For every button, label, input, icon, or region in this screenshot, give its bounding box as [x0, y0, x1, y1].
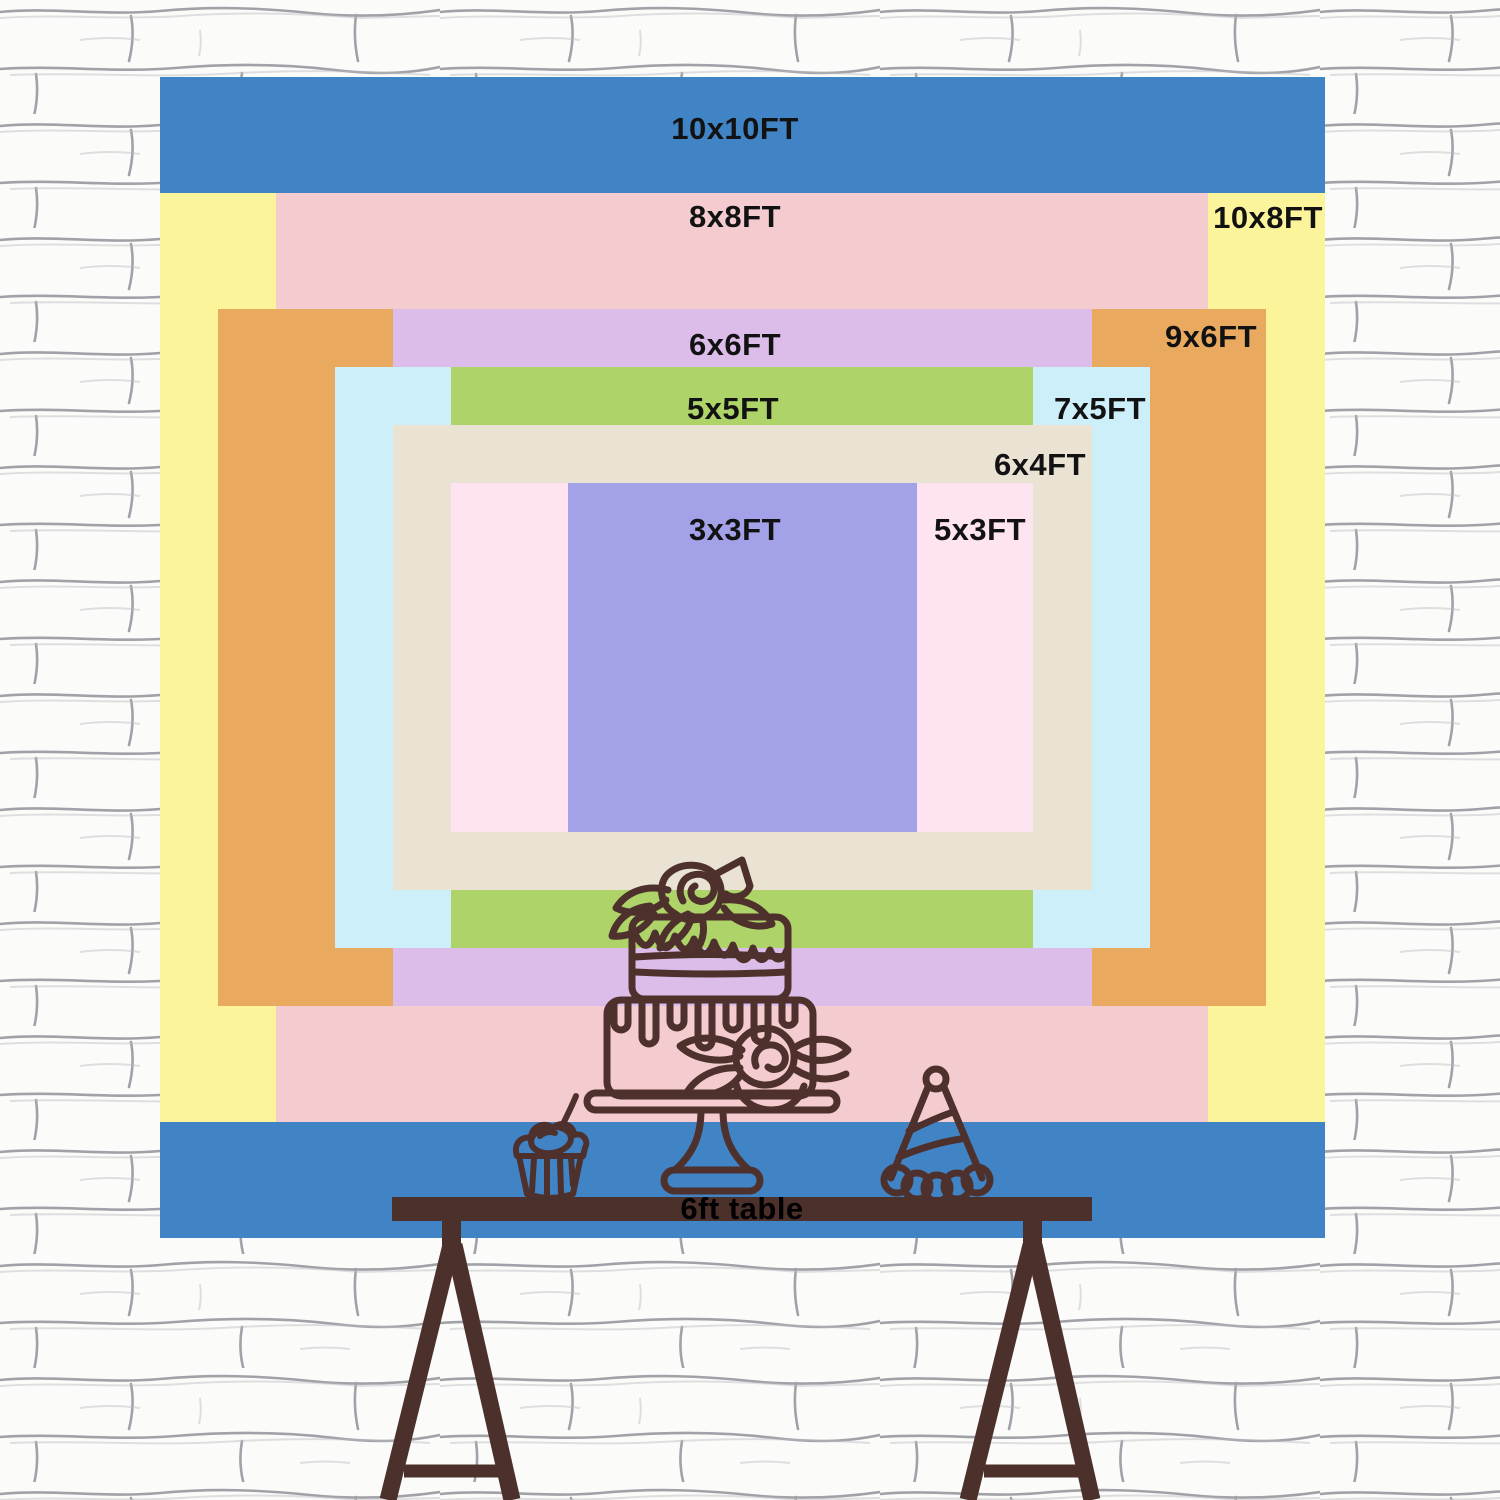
party-hat-icon — [884, 1069, 990, 1201]
table-label: 6ft table — [680, 1191, 803, 1227]
backdrop-size-chart: 10x10FT 8x8FT 10x8FT 6x6FT 9x6FT 5x5FT 7… — [0, 0, 1500, 1500]
table-legs — [388, 1245, 1092, 1500]
decorations — [0, 0, 1500, 1500]
cupcake-icon — [516, 1096, 586, 1198]
birthday-cake-icon — [587, 860, 848, 1191]
